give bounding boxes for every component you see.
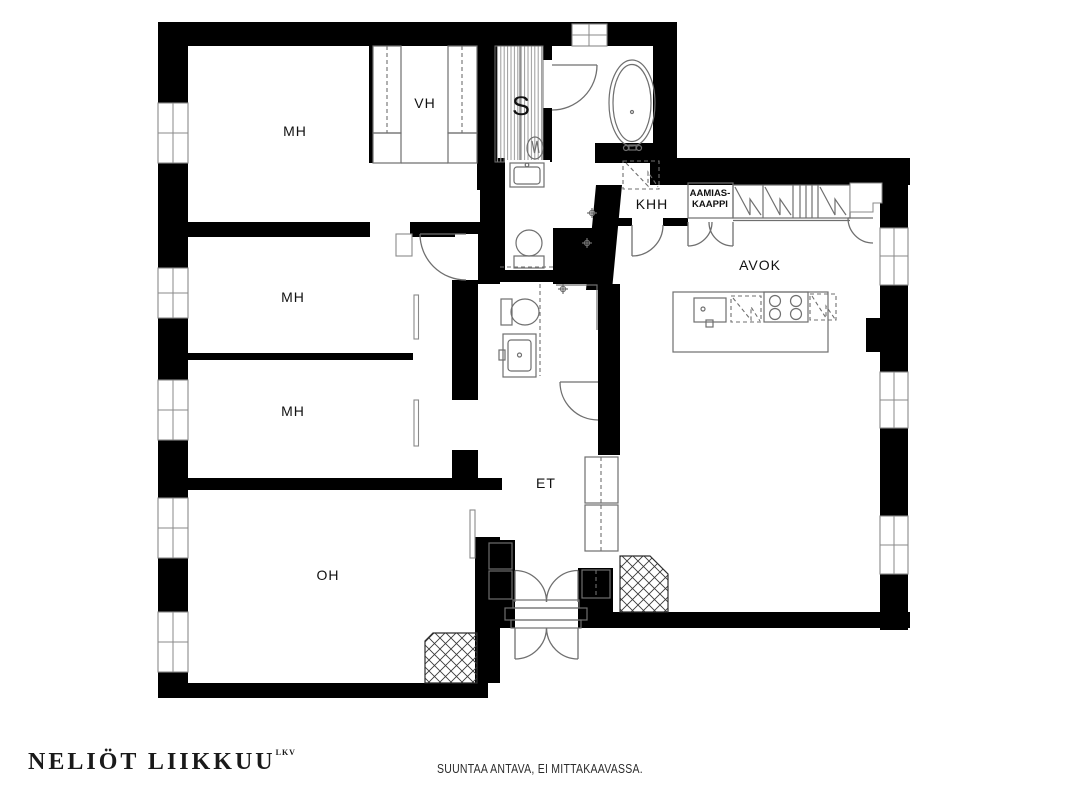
door-khh [632,225,663,256]
room-label-mh3: MH [281,403,305,419]
door-avok-corner [848,218,873,243]
brand-logo: NELIÖT LIIKKUULKV [28,748,296,776]
corner-niche [850,183,882,212]
door-aamiaskaappi-right [709,222,733,246]
disclaimer-text: SUUNTAA ANTAVA, EI MITTAKAAVASSA. [437,762,643,776]
bathtub [609,60,655,151]
window-avok-2 [880,372,908,428]
kitchen-island [673,292,836,352]
dishwasher-reservation [731,296,761,322]
washbasin-wc [499,334,536,377]
fireplace-oh [425,633,477,683]
room-label-avok: AVOK [739,257,781,273]
washbasin-sauna [505,160,550,190]
room-label-khh: KHH [636,196,669,212]
room-label-mh1: MH [283,123,307,139]
room-label-oh: OH [317,567,340,583]
window-oh-1 [158,498,188,558]
sliding-door-mh2 [414,295,419,339]
toilet [500,230,553,268]
brand-suffix: LKV [276,748,296,757]
sliding-door-mh3 [414,400,419,446]
door-frame-nub [396,234,412,256]
flue-avok [620,556,668,612]
stove-4-burner [764,292,808,322]
toilet-2 [501,299,539,325]
door-bathroom [552,65,597,110]
floor-plan-svg: MH VH S KHH AAMIAS- KAAPPI AVOK MH MH OH… [0,0,1066,740]
window-mh2 [158,268,188,318]
window-mh3 [158,380,188,440]
window-oh-2 [158,612,188,672]
sliding-door-oh [470,510,475,558]
door-mh2 [420,234,466,280]
window-avok-3 [880,516,908,574]
appliance-reservation [810,294,836,320]
kitchen-cabinet-row [733,185,850,221]
window-avok-1 [880,228,908,285]
room-label-et: ET [536,475,556,491]
kitchen-sink [694,298,726,327]
window-bath [572,24,607,46]
room-label-sauna: S [512,91,530,121]
floor-plan-page: MH VH S KHH AAMIAS- KAAPPI AVOK MH MH OH… [0,0,1066,800]
window-mh1 [158,103,188,163]
room-label-vh: VH [414,95,435,111]
room-label-mh2: MH [281,289,305,305]
entrance-door-outer [515,628,578,659]
room-label-aamias-line2: KAAPPI [692,199,728,210]
door-aamiaskaappi-left [688,222,712,246]
shower [540,284,597,376]
fixtures [373,46,882,683]
door-wc [560,382,598,420]
room-label-aamias-line1: AAMIAS- [690,188,731,199]
brand-text: NELIÖT LIIKKUU [28,749,276,775]
